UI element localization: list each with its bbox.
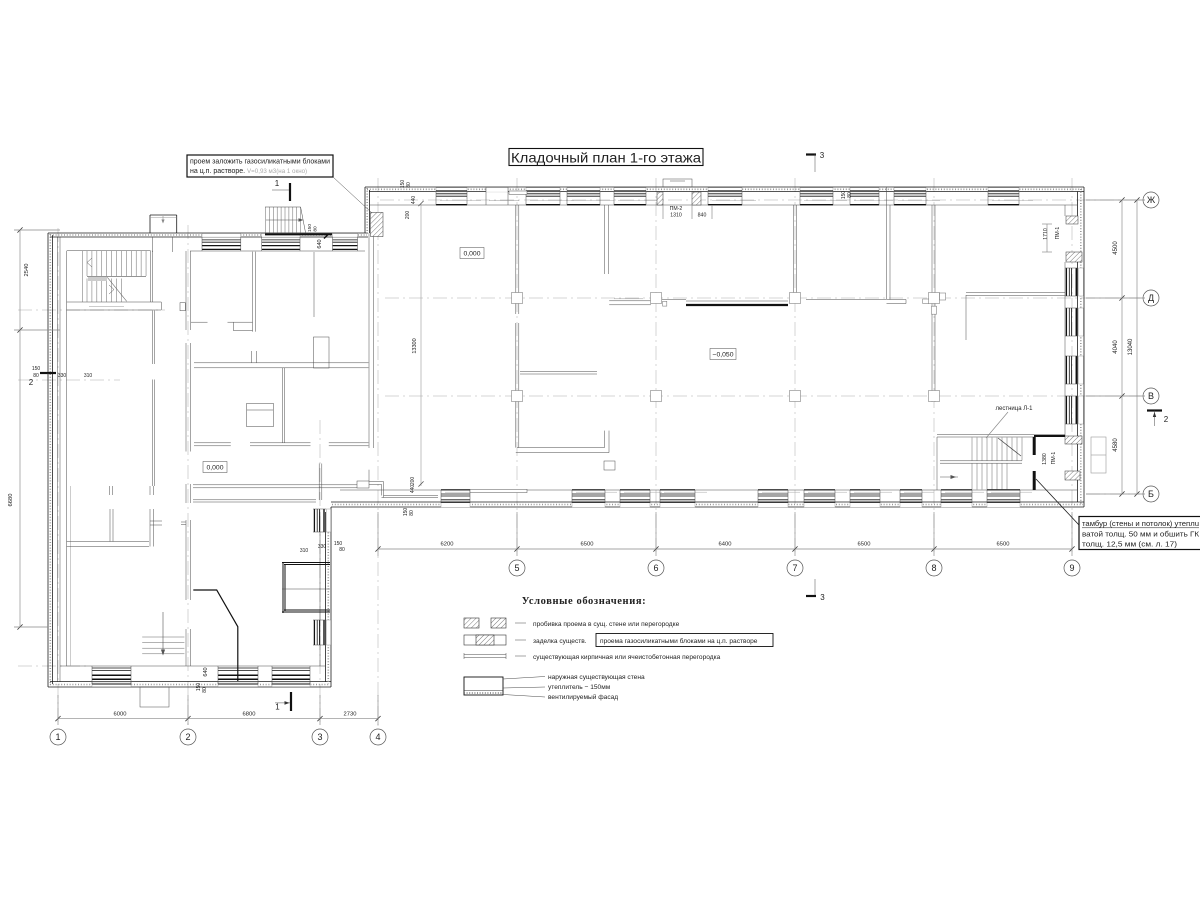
svg-text:6500: 6500 [858, 542, 871, 548]
svg-text:330: 330 [58, 373, 67, 379]
svg-text:Кладочный план 1-го этажа: Кладочный план 1-го этажа [511, 150, 701, 166]
svg-text:9: 9 [1069, 563, 1074, 573]
svg-text:ватой толщ. 50 мм и обшить ГК: ватой толщ. 50 мм и обшить ГК [1082, 530, 1200, 539]
svg-text:6400: 6400 [719, 542, 732, 548]
svg-text:−0,050: −0,050 [713, 352, 734, 359]
svg-text:лестница Л-1: лестница Л-1 [996, 406, 1034, 412]
svg-text:Ж: Ж [1147, 195, 1156, 205]
svg-text:150: 150 [307, 224, 313, 232]
svg-text:существующая кирпичная или яче: существующая кирпичная или ячеистобетонн… [533, 653, 721, 661]
svg-text:1380: 1380 [1042, 453, 1048, 465]
svg-text:3: 3 [317, 732, 322, 742]
svg-text:проема газосиликатными блоками: проема газосиликатными блоками на ц.п. р… [600, 637, 758, 645]
svg-text:В: В [1148, 391, 1154, 401]
svg-text:6800: 6800 [243, 712, 256, 718]
svg-text:4580: 4580 [1113, 438, 1119, 452]
svg-text:80: 80 [406, 182, 412, 188]
svg-text:200: 200 [405, 211, 411, 220]
svg-text:ПМ-1: ПМ-1 [1055, 227, 1061, 240]
svg-text:80: 80 [33, 373, 39, 379]
svg-text:6000: 6000 [114, 712, 127, 718]
svg-text:Б: Б [1148, 489, 1154, 499]
svg-text:1310: 1310 [670, 213, 682, 219]
svg-text:200: 200 [410, 477, 416, 486]
svg-text:Условные обозначения:: Условные обозначения: [522, 596, 647, 607]
svg-text:1: 1 [55, 732, 60, 742]
svg-text:проем заложить газосиликатными: проем заложить газосиликатными блоками [190, 158, 330, 166]
svg-text:4040: 4040 [1113, 340, 1119, 354]
svg-text:13040: 13040 [1128, 338, 1134, 355]
svg-text:2: 2 [185, 732, 190, 742]
svg-text:утеплитель − 150мм: утеплитель − 150мм [548, 684, 611, 691]
svg-text:6680: 6680 [8, 494, 14, 507]
svg-text:Д: Д [1148, 293, 1154, 303]
svg-text:150: 150 [32, 366, 41, 372]
svg-text:заделка существ.: заделка существ. [533, 638, 587, 645]
svg-text:330: 330 [318, 544, 327, 550]
svg-text:6: 6 [653, 563, 658, 573]
svg-text:80: 80 [339, 547, 345, 553]
svg-text:5: 5 [514, 563, 519, 573]
svg-text:толщ. 12,5 мм (см. л. 17): толщ. 12,5 мм (см. л. 17) [1082, 540, 1177, 549]
svg-text:13300: 13300 [412, 338, 418, 353]
svg-text:8: 8 [931, 563, 936, 573]
svg-text:3: 3 [820, 593, 825, 602]
svg-text:0,000: 0,000 [206, 465, 223, 472]
svg-text:7: 7 [792, 563, 797, 573]
svg-text:4: 4 [375, 732, 380, 742]
svg-text:840: 840 [698, 213, 707, 219]
svg-text:4500: 4500 [1113, 241, 1119, 255]
svg-text:2730: 2730 [344, 712, 357, 718]
svg-text:ПМ-1: ПМ-1 [1051, 452, 1057, 465]
svg-text:80: 80 [847, 192, 853, 198]
svg-text:1: 1 [275, 703, 280, 712]
svg-text:0,000: 0,000 [463, 251, 480, 258]
svg-text:440: 440 [410, 485, 416, 494]
svg-text:3: 3 [820, 151, 825, 160]
svg-text:тамбур (стены и потолок) утепл: тамбур (стены и потолок) утеплu [1082, 519, 1199, 528]
svg-text:ПМ-2: ПМ-2 [670, 206, 683, 212]
svg-text:вентилируемый фасад: вентилируемый фасад [548, 693, 618, 701]
svg-text:наружная существующая стена: наружная существующая стена [548, 674, 645, 681]
svg-text:2: 2 [1164, 415, 1169, 424]
svg-text:440: 440 [411, 196, 417, 205]
svg-text:640: 640 [317, 239, 323, 248]
svg-text:1710: 1710 [1043, 228, 1049, 240]
svg-text:6500: 6500 [997, 542, 1010, 548]
svg-text:2540: 2540 [24, 264, 30, 277]
svg-text:2: 2 [29, 378, 34, 387]
svg-text:640: 640 [203, 667, 209, 676]
svg-text:310: 310 [300, 548, 309, 554]
svg-text:80: 80 [313, 226, 319, 232]
svg-text:пробивка проема в сущ. стене: пробивка проема в сущ. стене или перегор… [533, 620, 680, 628]
svg-text:80: 80 [202, 687, 208, 693]
svg-text:на ц.п. растворе. V=0,93 м3(на: на ц.п. растворе. V=0,93 м3(на 1 окно) [190, 168, 307, 175]
svg-text:1: 1 [275, 179, 280, 188]
svg-text:6200: 6200 [441, 542, 454, 548]
svg-text:80: 80 [409, 510, 415, 516]
svg-text:6500: 6500 [581, 542, 594, 548]
svg-text:310: 310 [84, 373, 93, 379]
